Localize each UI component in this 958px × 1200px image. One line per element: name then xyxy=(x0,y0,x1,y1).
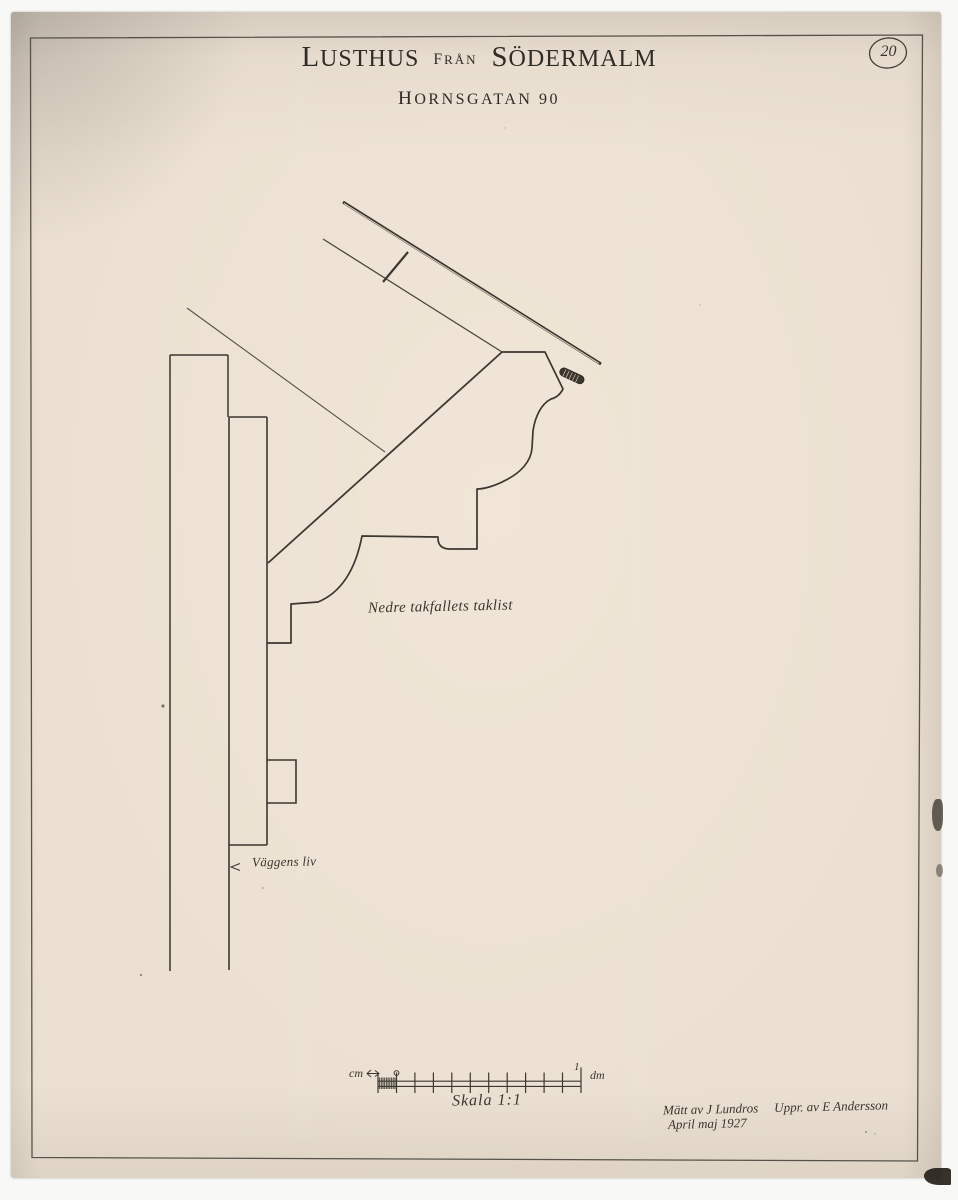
wall-board xyxy=(229,417,267,970)
drawing-subtitle: HORNSGATAN 90 xyxy=(0,86,958,113)
signature-date: April maj 1927 xyxy=(668,1115,747,1133)
scale-caption: Skala 1:1 xyxy=(452,1091,522,1110)
construction-line xyxy=(187,308,385,452)
drawing-title: LUSTHUS FRÅN SÖDERMALM xyxy=(0,44,958,73)
scale-start-mark xyxy=(367,1070,379,1077)
scale-unit-cm: cm xyxy=(349,1066,363,1081)
left-board xyxy=(170,355,228,971)
scale-ticks xyxy=(378,1068,581,1094)
title-word-sodermalm: SÖDERMALM xyxy=(492,44,657,72)
subtitle-address: HORNSGATAN 90 xyxy=(398,86,560,113)
drip-edge xyxy=(558,367,585,386)
wall-batten xyxy=(267,760,296,803)
scale-end-tick-label: 1 xyxy=(574,1061,580,1073)
cornice-annotation: Nedre takfallets taklist xyxy=(368,597,513,617)
paper-specks xyxy=(140,127,876,1134)
roof-joint-tick xyxy=(383,252,408,282)
scanned-drawing-page: { "meta": { "sheet_number": "20" }, "tit… xyxy=(0,0,958,1200)
scale-hatch-block xyxy=(378,1078,397,1090)
title-word-lusthus: LUSTHUS xyxy=(301,44,419,72)
signature-drawn-by: Uppr. av E Andersson xyxy=(774,1097,888,1115)
scale-bar xyxy=(367,1068,581,1094)
wall-plane-arrow xyxy=(231,864,240,871)
sheet-number: 20 xyxy=(871,43,906,61)
roof-line xyxy=(343,202,601,364)
roof-board-line xyxy=(323,239,502,352)
soffit-line xyxy=(268,352,502,563)
scale-unit-dm: dm xyxy=(590,1068,605,1083)
title-word-fran: FRÅN xyxy=(433,47,477,73)
wall-plane-annotation: Väggens liv xyxy=(252,853,317,870)
